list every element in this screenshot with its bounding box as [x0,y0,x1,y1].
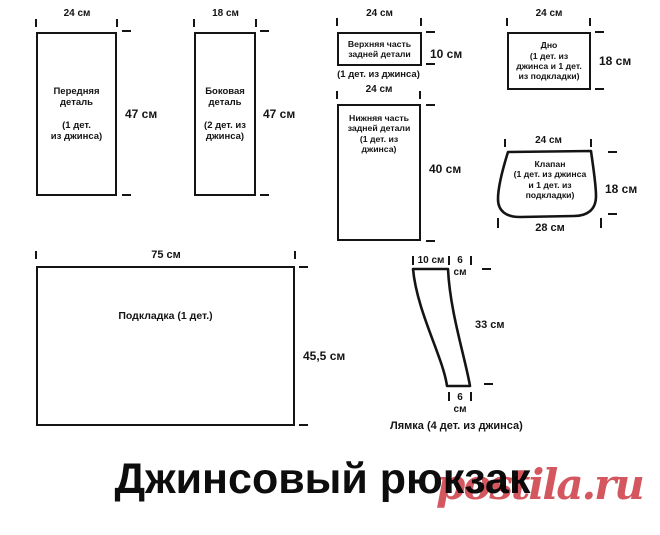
dimension-dash [260,194,269,196]
sewing-pattern-diagram: 24 см Передняя деталь (1 дет. из джинса)… [0,0,660,535]
flap-height-label: 18 см [605,183,637,196]
lining-width-label: 75 см [36,250,296,262]
side-piece-label: Боковая деталь (2 дет. из джинса) [204,86,246,143]
tick-mark [35,19,37,27]
lining-height-label: 45,5 см [303,350,345,363]
back-top-note: (1 дет. из джинса) [330,70,427,80]
dimension-dash [595,88,604,90]
front-height-label: 47 см [125,108,157,121]
dimension-dash [482,268,491,270]
back-top-width-label: 24 см [337,9,422,20]
back-top-piece-outline: Верхняя часть задней детали [337,32,422,66]
dimension-dash [299,424,308,426]
dimension-dash [122,194,131,196]
strap-caption: Лямка (4 дет. из джинса) [390,421,520,433]
tick-mark [497,218,499,228]
dimension-dash [484,383,493,385]
flap-bottom-width-label: 28 см [505,223,595,235]
strap-bottom-width-label: 6 [450,393,470,404]
front-piece-label: Передняя деталь (1 дет. из джинса) [51,86,102,143]
dimension-dash [260,30,269,32]
side-width-label: 18 см [194,9,257,20]
lining-piece-outline: Подкладка (1 дет.) [36,266,295,426]
dimension-dash [595,31,604,33]
watermark: postila.ru [436,464,643,506]
bottom-piece-outline: Дно (1 дет. из джинса и 1 дет. из подкла… [507,32,591,90]
dimension-dash [608,151,617,153]
lining-piece-label: Подкладка (1 дет.) [118,310,212,323]
back-bottom-piece-outline: Нижняя часть задней детали (1 дет. из дж… [337,104,421,241]
back-top-piece-label: Верхняя часть задней детали [348,39,411,60]
flap-label: Клапан (1 дет. из джинса и 1 дет. из под… [500,159,600,201]
bottom-piece-label: Дно (1 дет. из джинса и 1 дет. из подкла… [516,40,582,82]
dimension-dash [299,266,308,268]
back-top-height-label: 10 см [430,48,462,61]
strap-height-label: 33 см [475,320,505,332]
back-bottom-width-label: 24 см [337,85,421,96]
dimension-dash [426,104,435,106]
side-height-label: 47 см [263,108,295,121]
back-bottom-height-label: 40 см [429,163,461,176]
dimension-dash [426,31,435,33]
tick-mark [193,19,195,27]
dimension-dash [122,30,131,32]
tick-mark [116,19,118,27]
tick-mark [470,392,472,401]
bottom-height-label: 18 см [599,55,631,68]
tick-mark [255,19,257,27]
dimension-dash [608,213,617,215]
dimension-dash [426,63,435,65]
strap-shape [405,262,480,392]
dimension-dash [426,240,435,242]
bottom-width-label: 24 см [507,9,591,20]
front-piece-outline: Передняя деталь (1 дет. из джинса) [36,32,117,196]
front-width-label: 24 см [36,9,118,20]
strap-bottom-width-unit: см [450,405,470,416]
back-bottom-piece-label: Нижняя часть задней детали (1 дет. из дж… [348,113,411,155]
tick-mark [600,218,602,228]
side-piece-outline: Боковая деталь (2 дет. из джинса) [194,32,256,196]
